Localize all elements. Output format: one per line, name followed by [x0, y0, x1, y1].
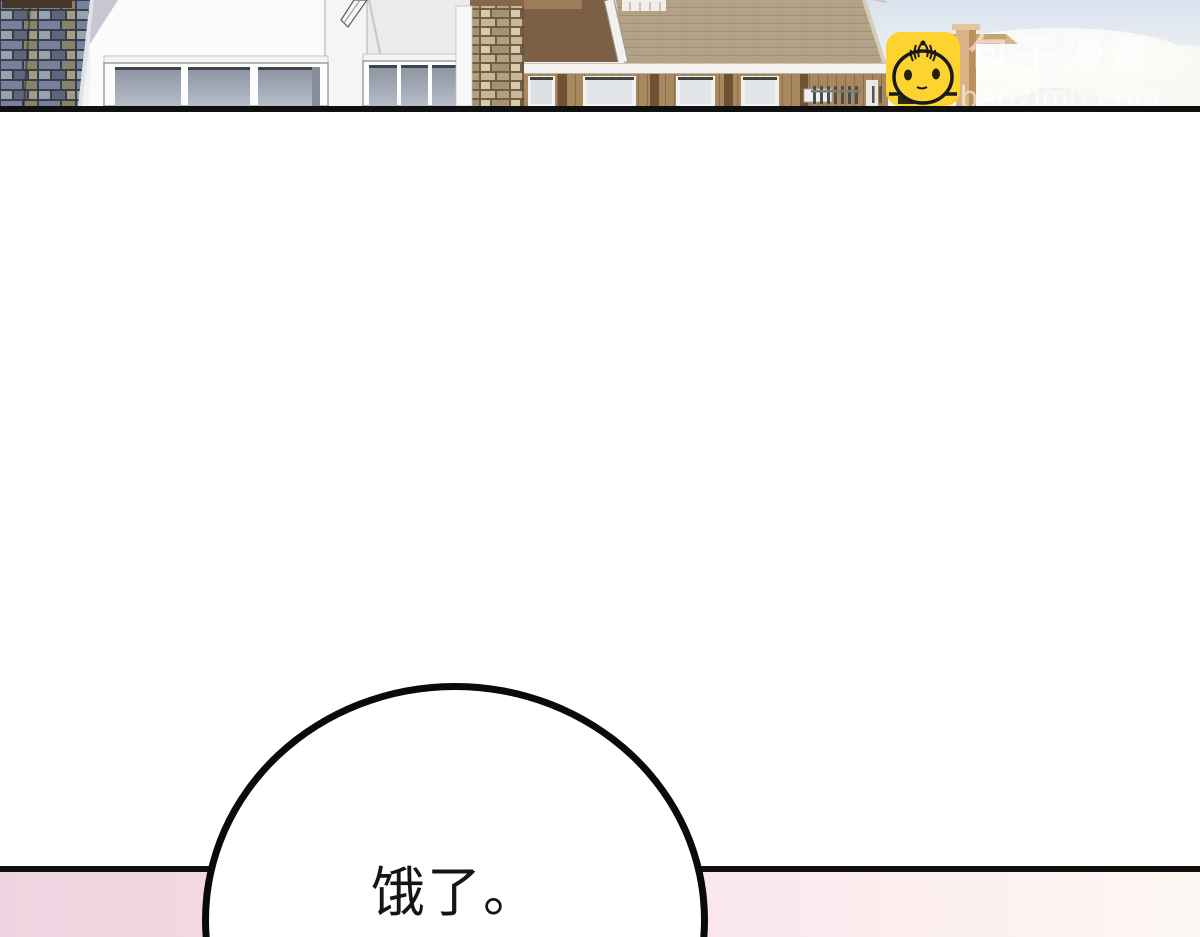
window-left-set	[104, 63, 328, 106]
watermark-site-url: baozimh.com	[960, 80, 1190, 106]
speech-bubble-text: 饿了。	[209, 848, 701, 927]
panel-divider-top	[0, 106, 1200, 112]
baozi-mascot-icon	[886, 32, 960, 106]
stone-column	[468, 0, 524, 106]
white-building	[90, 0, 472, 106]
stone-chimney	[0, 0, 94, 106]
comic-page: 包子漫畫 baozimh.com 饿了。	[0, 0, 1200, 937]
watermark-brand-text: 包子漫畫	[968, 33, 1188, 79]
panel-house-exterior: 包子漫畫 baozimh.com	[0, 0, 1200, 106]
window-right-set	[363, 61, 470, 106]
speech-bubble: 饿了。	[202, 683, 708, 937]
eave-fascia	[520, 63, 888, 74]
